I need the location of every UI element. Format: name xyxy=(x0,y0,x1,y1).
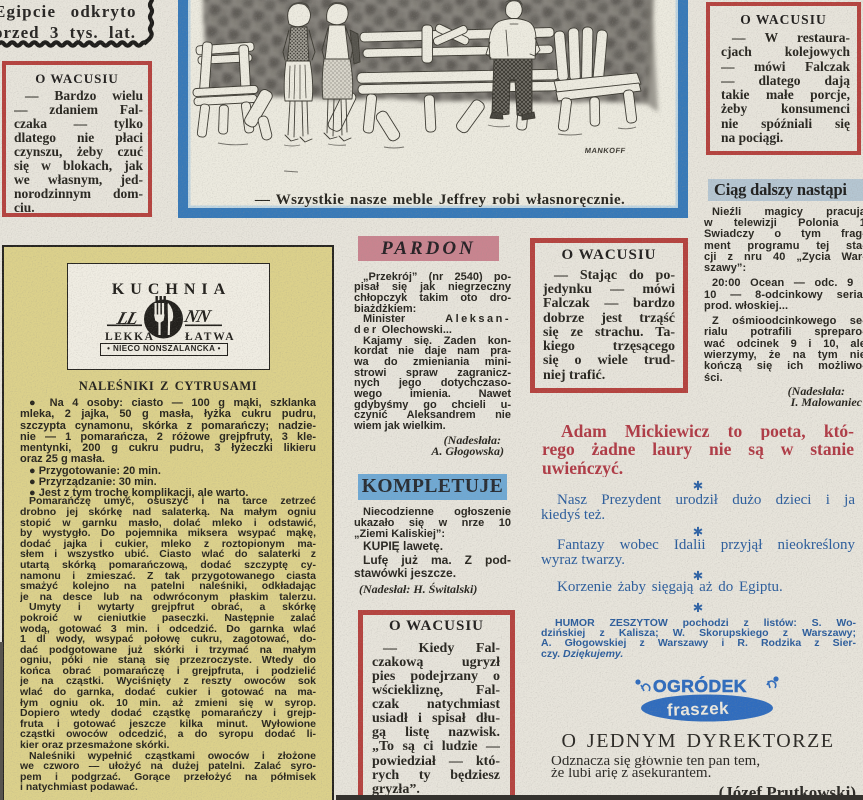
svg-text:MANKOFF: MANKOFF xyxy=(584,146,626,155)
svg-text:NN: NN xyxy=(181,306,213,326)
svg-text:fraszek: fraszek xyxy=(667,699,730,720)
svg-text:OGRÓDEK: OGRÓDEK xyxy=(653,675,747,696)
